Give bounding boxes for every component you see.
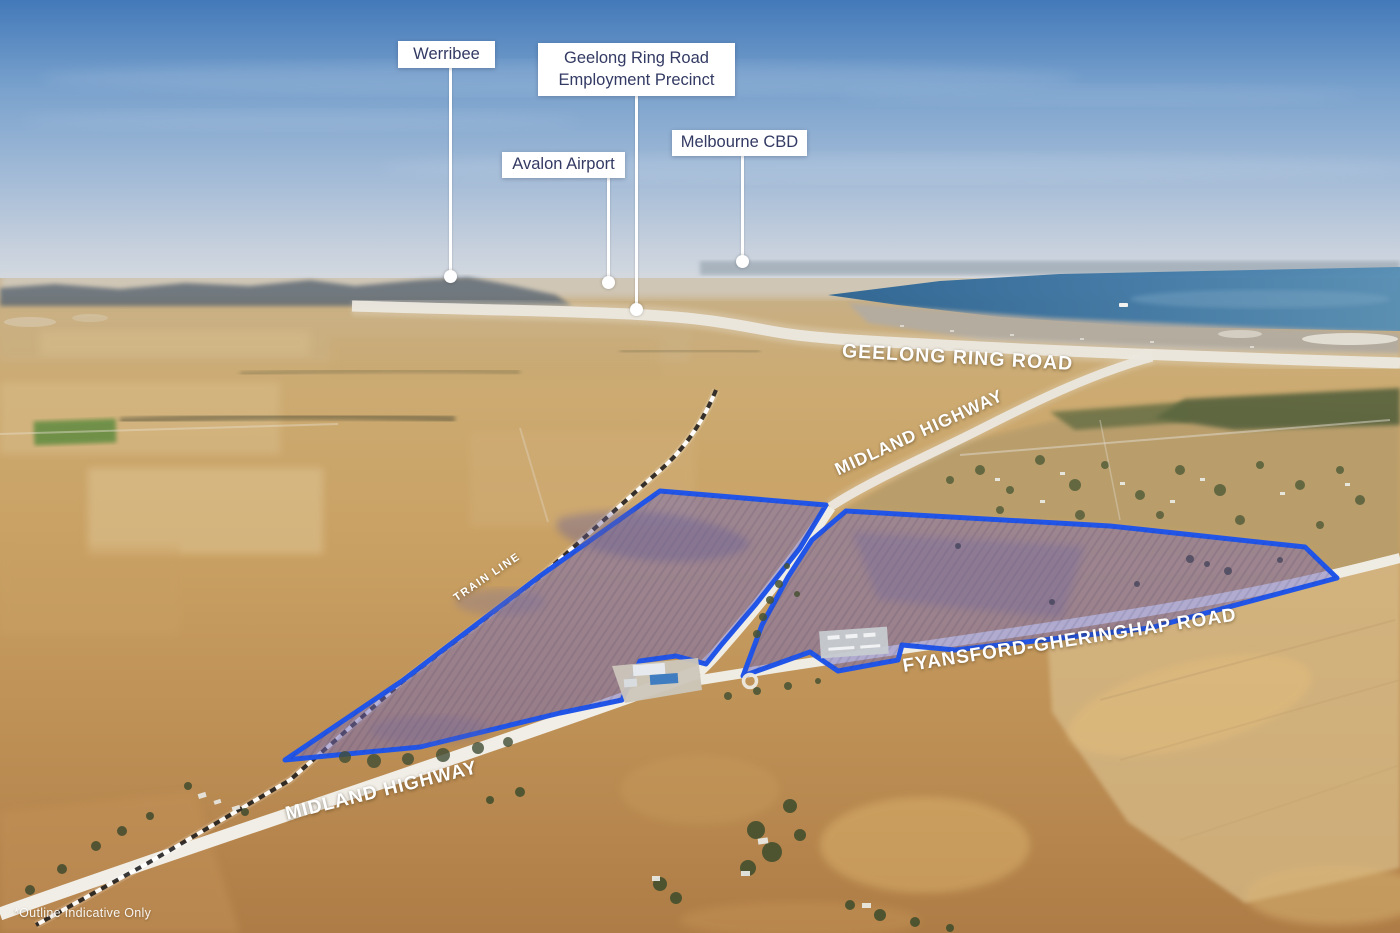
callout-werribee: Werribee [398,41,495,68]
leader-dot-werribee [444,270,457,283]
callout-avalon-label: Avalon Airport [512,154,614,176]
golden-patch [820,797,1030,893]
cloud-streak [840,85,1360,105]
salt-pan [1218,330,1262,338]
aerial-marketing-image: Werribee Geelong Ring Road Employment Pr… [0,0,1400,933]
leader-dot-melbourne [736,255,749,268]
callout-melbourne-cbd: Melbourne CBD [672,130,807,156]
leader-line-avalon [607,178,610,277]
callout-werribee-label: Werribee [413,44,480,66]
cloud-streak [20,110,580,130]
leader-dot-avalon [602,276,615,289]
callout-melbourne-label: Melbourne CBD [681,132,798,154]
ship [1119,303,1128,307]
leader-dot-grrep [630,303,643,316]
callout-geelong-ring-road-employment-precinct: Geelong Ring Road Employment Precinct [538,43,735,96]
disclaimer-text: *Outline Indicative Only [14,906,151,920]
leader-line-werribee [449,68,452,271]
salt-pan [1302,333,1398,345]
field-patch [620,755,780,825]
leader-line-grrep [635,96,638,304]
substation [819,627,889,659]
sea-shine [1130,290,1390,308]
callout-grrep-line2: Employment Precinct [559,70,715,92]
callout-grrep-line1: Geelong Ring Road [564,48,709,70]
leader-line-melbourne [741,156,744,256]
callout-avalon-airport: Avalon Airport [502,152,625,178]
